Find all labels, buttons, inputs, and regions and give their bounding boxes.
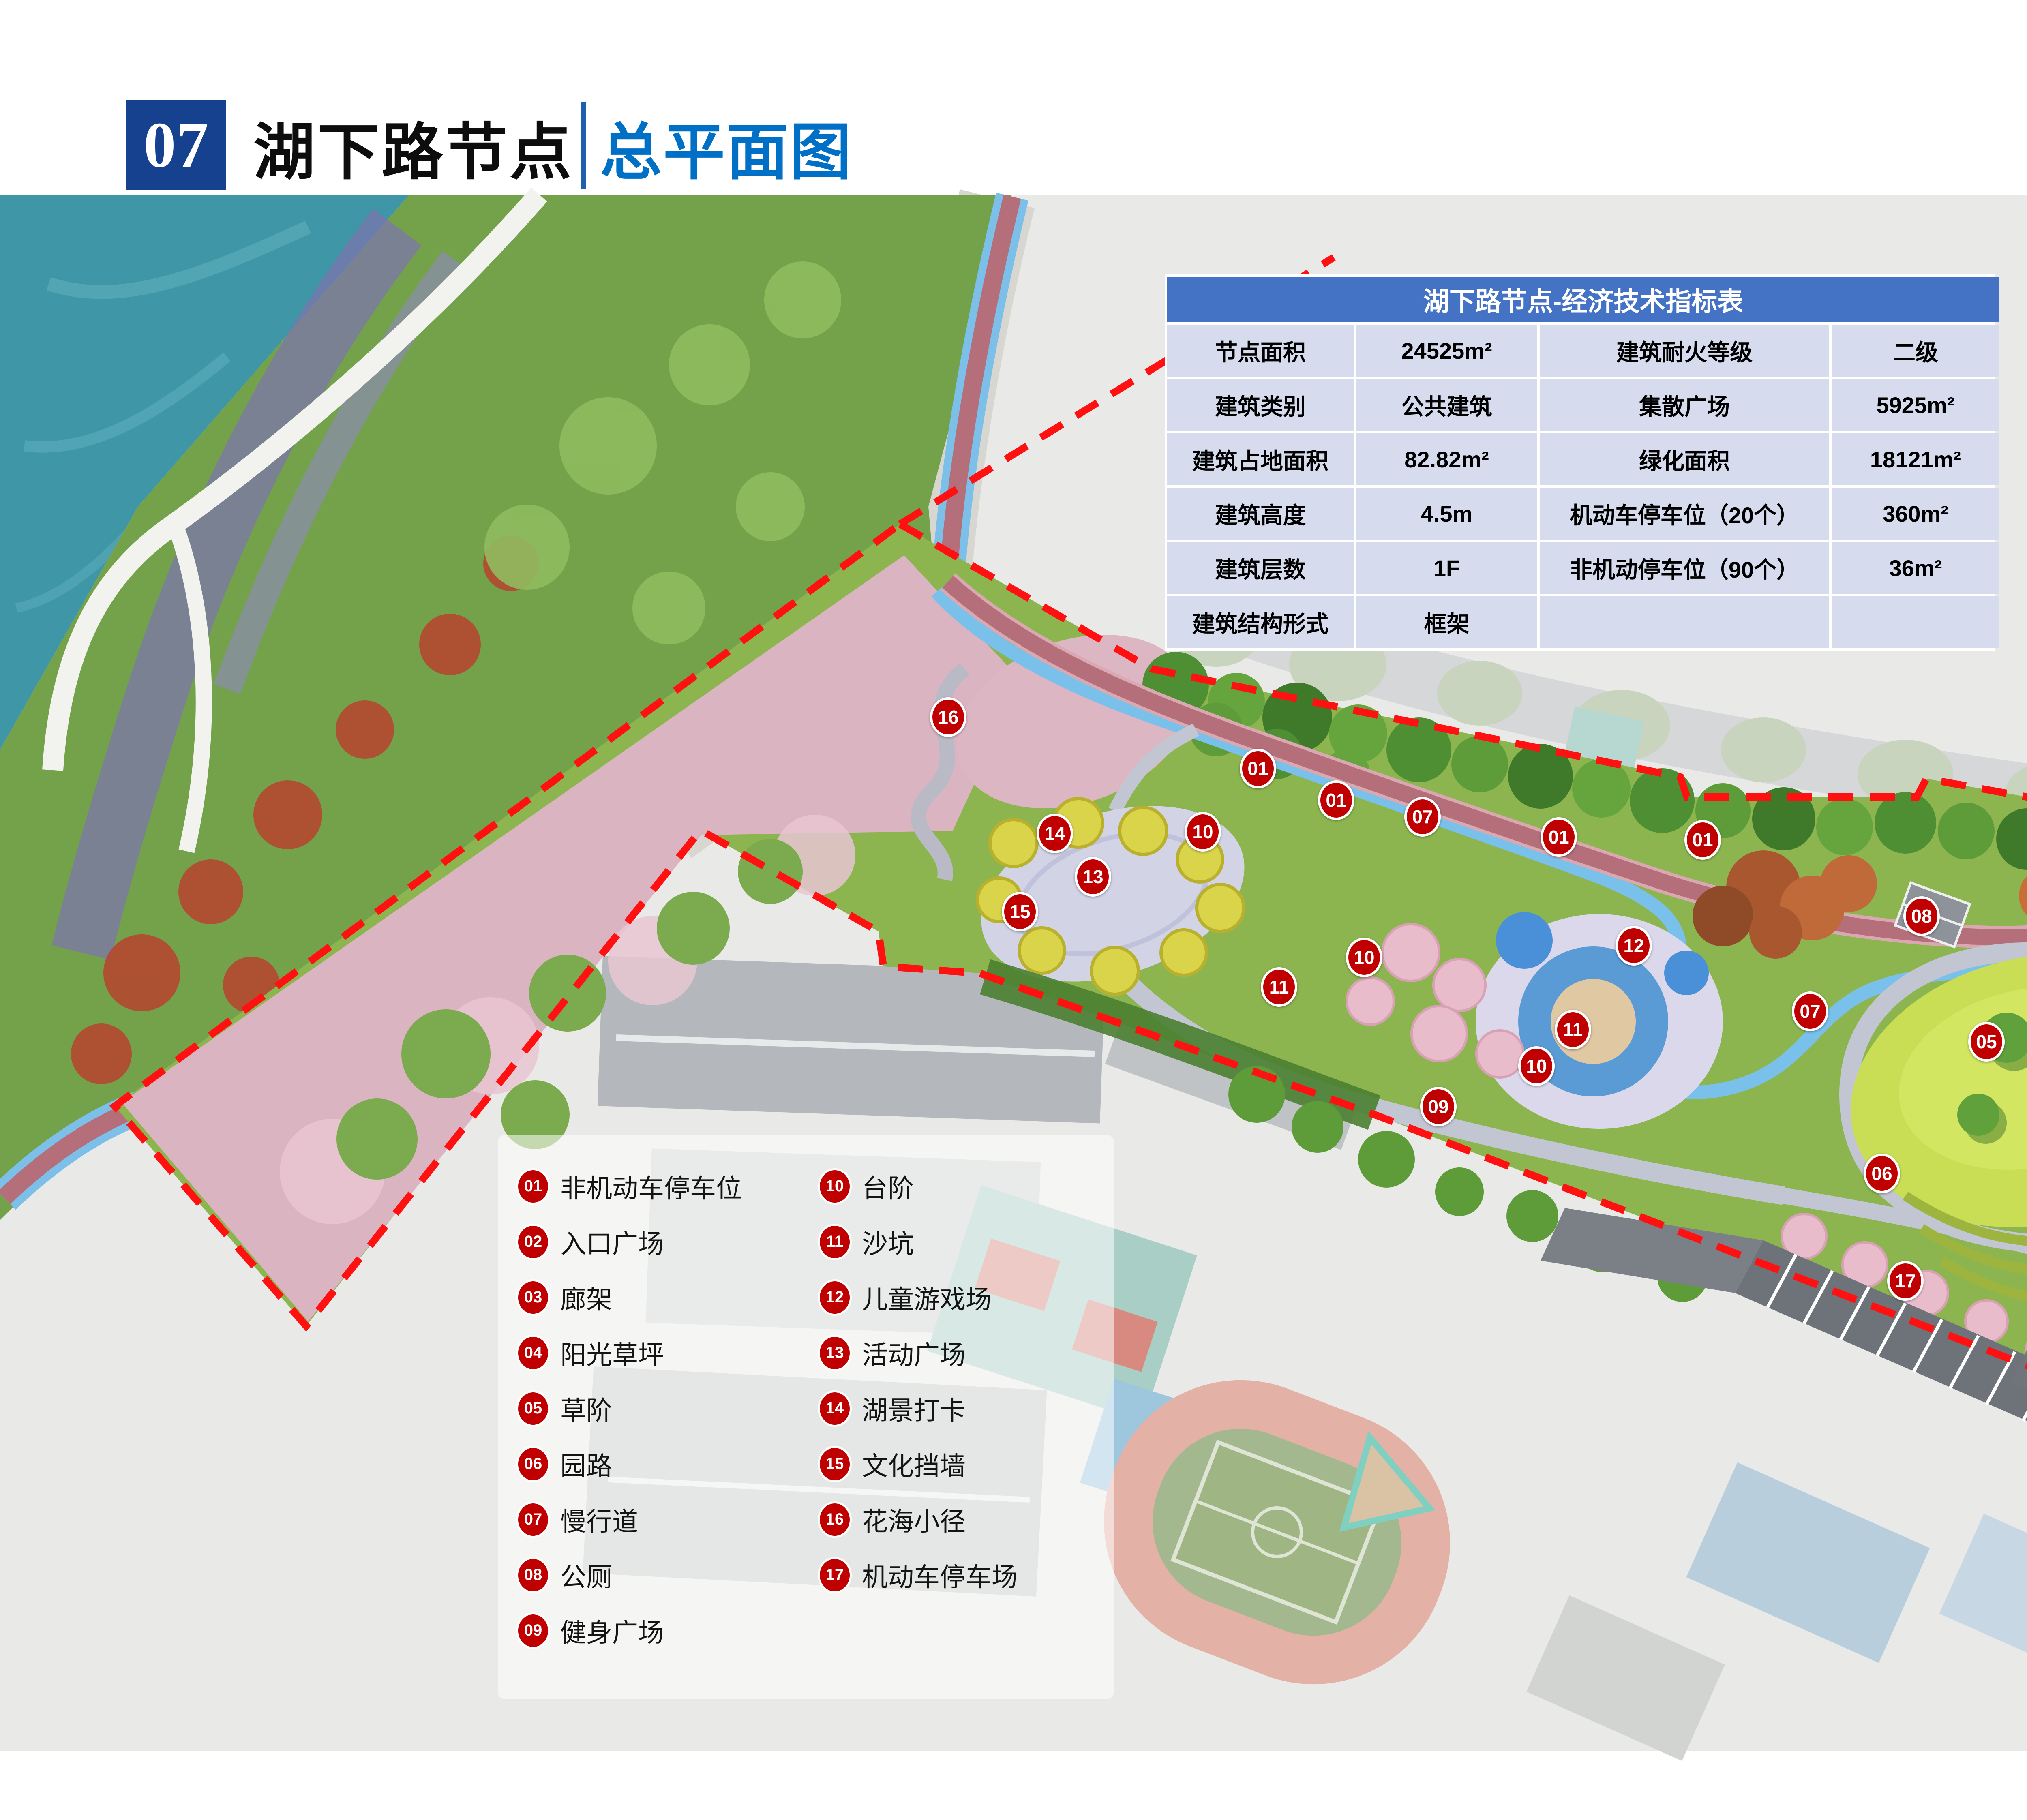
table-cell-r1c3: 建筑耐火等级 bbox=[1540, 325, 1829, 377]
map-marker-09: 09 bbox=[1420, 1087, 1457, 1126]
legend-item-01: 01非机动车停车位 bbox=[518, 1158, 742, 1214]
map-marker-07: 07 bbox=[1404, 797, 1441, 837]
map-marker-10: 10 bbox=[1518, 1046, 1555, 1086]
legend-item-02: 02入口广场 bbox=[518, 1214, 742, 1270]
legend-item-05: 05草阶 bbox=[518, 1381, 742, 1436]
legend-item-03: 03廊架 bbox=[518, 1270, 742, 1325]
map-marker-01: 01 bbox=[1240, 749, 1276, 788]
legend-badge-14: 14 bbox=[820, 1392, 850, 1425]
table-cell-r5c4: 36m² bbox=[1832, 542, 1999, 594]
section-number-box: 07 bbox=[126, 100, 226, 190]
legend-label-06: 园路 bbox=[560, 1445, 612, 1483]
table-cell-r4c4: 360m² bbox=[1832, 488, 1999, 540]
legend-item-06: 06园路 bbox=[518, 1436, 742, 1492]
table-cell-r1c1: 节点面积 bbox=[1167, 325, 1354, 377]
map-marker-10: 10 bbox=[1346, 938, 1382, 977]
table-cell-r4c1: 建筑高度 bbox=[1167, 488, 1354, 540]
table-cell-r2c2: 公共建筑 bbox=[1356, 379, 1537, 431]
legend-label-03: 廊架 bbox=[560, 1279, 612, 1316]
legend-badge-08: 08 bbox=[518, 1559, 548, 1591]
legend-label-10: 台阶 bbox=[862, 1168, 914, 1205]
legend-label-16: 花海小径 bbox=[862, 1501, 966, 1538]
legend-item-10: 10台阶 bbox=[820, 1158, 1018, 1214]
map-marker-14: 14 bbox=[1037, 814, 1073, 853]
legend-label-12: 儿童游戏场 bbox=[862, 1279, 992, 1316]
legend-item-16: 16花海小径 bbox=[820, 1492, 1018, 1547]
legend-badge-17: 17 bbox=[820, 1559, 850, 1591]
map-marker-08: 08 bbox=[1903, 896, 1940, 936]
table-cell-r1c2: 24525m² bbox=[1356, 325, 1537, 377]
table-cell-r5c1: 建筑层数 bbox=[1167, 542, 1354, 594]
map-marker-06: 06 bbox=[1864, 1154, 1900, 1193]
legend-item-08: 08公厕 bbox=[518, 1547, 742, 1603]
legend-column-2: 10台阶11沙坑12儿童游戏场13活动广场14湖景打卡15文化挡墙16花海小径1… bbox=[820, 1158, 1018, 1603]
table-cell-r1c4: 二级 bbox=[1832, 325, 1999, 377]
map-marker-05: 05 bbox=[1968, 1022, 2005, 1062]
map-marker-16: 16 bbox=[930, 697, 966, 737]
table-title: 湖下路节点-经济技术指标表 bbox=[1167, 277, 1999, 322]
legend-column-1: 01非机动车停车位02入口广场03廊架04阳光草坪05草阶06园路07慢行道08… bbox=[518, 1158, 742, 1658]
table-cell-r2c1: 建筑类别 bbox=[1167, 379, 1354, 431]
legend-badge-16: 16 bbox=[820, 1503, 850, 1536]
page-title: 湖下路节点 bbox=[253, 106, 574, 187]
map-marker-01: 01 bbox=[1684, 820, 1721, 860]
map-marker-17: 17 bbox=[1887, 1261, 1924, 1301]
legend-label-17: 机动车停车场 bbox=[862, 1557, 1018, 1594]
legend-label-02: 入口广场 bbox=[560, 1223, 664, 1261]
legend-item-15: 15文化挡墙 bbox=[820, 1436, 1018, 1492]
legend-label-11: 沙坑 bbox=[862, 1223, 914, 1261]
legend-badge-03: 03 bbox=[518, 1281, 548, 1314]
legend-badge-12: 12 bbox=[820, 1281, 850, 1314]
economic-indicators-table: 湖下路节点-经济技术指标表 节点面积24525m²建筑耐火等级二级建筑类别公共建… bbox=[1165, 274, 1995, 651]
legend-label-05: 草阶 bbox=[560, 1390, 612, 1427]
legend-label-08: 公厕 bbox=[560, 1557, 612, 1594]
table-cell-r6c2: 框架 bbox=[1356, 596, 1537, 648]
legend-label-09: 健身广场 bbox=[560, 1612, 664, 1649]
table-cell-r4c3: 机动车停车位（20个） bbox=[1540, 488, 1829, 540]
legend-badge-09: 09 bbox=[518, 1614, 548, 1647]
table-cell-r2c4: 5925m² bbox=[1832, 379, 1999, 431]
legend-label-04: 阳光草坪 bbox=[560, 1334, 664, 1372]
legend-badge-15: 15 bbox=[820, 1448, 850, 1480]
legend-item-09: 09健身广场 bbox=[518, 1603, 742, 1658]
table-cell-r6c3 bbox=[1540, 596, 1829, 648]
table-cell-r5c3: 非机动停车位（90个） bbox=[1540, 542, 1829, 594]
map-marker-15: 15 bbox=[1002, 892, 1038, 931]
legend-badge-04: 04 bbox=[518, 1337, 548, 1369]
legend-badge-06: 06 bbox=[518, 1448, 548, 1480]
legend-badge-05: 05 bbox=[518, 1392, 548, 1425]
legend-badge-10: 10 bbox=[820, 1170, 850, 1203]
map-marker-11: 11 bbox=[1555, 1010, 1591, 1049]
table-cell-r3c2: 82.82m² bbox=[1356, 433, 1537, 485]
table-cell-r3c1: 建筑占地面积 bbox=[1167, 433, 1354, 485]
map-marker-12: 12 bbox=[1616, 926, 1652, 966]
legend-item-14: 14湖景打卡 bbox=[820, 1381, 1018, 1436]
map-marker-01: 01 bbox=[1318, 780, 1354, 820]
legend-badge-11: 11 bbox=[820, 1226, 850, 1258]
legend-item-13: 13活动广场 bbox=[820, 1325, 1018, 1381]
legend-label-01: 非机动车停车位 bbox=[560, 1168, 742, 1205]
legend-badge-07: 07 bbox=[518, 1503, 548, 1536]
legend-label-13: 活动广场 bbox=[862, 1334, 966, 1372]
legend-badge-02: 02 bbox=[518, 1226, 548, 1258]
map-marker-07: 07 bbox=[1792, 991, 1828, 1031]
page-subtitle: 总平面图 bbox=[600, 106, 853, 187]
map-marker-01: 01 bbox=[1541, 817, 1577, 857]
slide-page: 07 湖下路节点 总平面图 湖下路节点-经济技术指标表 节点面积24525m²建… bbox=[0, 0, 2027, 1820]
table-cell-r4c2: 4.5m bbox=[1356, 488, 1537, 540]
legend-label-07: 慢行道 bbox=[560, 1501, 638, 1538]
table-cell-r3c3: 绿化面积 bbox=[1540, 433, 1829, 485]
map-marker-13: 13 bbox=[1075, 857, 1111, 897]
legend-item-17: 17机动车停车场 bbox=[820, 1547, 1018, 1603]
table-cell-r2c3: 集散广场 bbox=[1540, 379, 1829, 431]
legend-badge-13: 13 bbox=[820, 1337, 850, 1369]
table-cell-r5c2: 1F bbox=[1356, 542, 1537, 594]
legend-label-15: 文化挡墙 bbox=[862, 1445, 966, 1483]
table-cell-r6c1: 建筑结构形式 bbox=[1167, 596, 1354, 648]
title-divider bbox=[581, 102, 586, 189]
legend-label-14: 湖景打卡 bbox=[862, 1390, 966, 1427]
table-cell-r3c4: 18121m² bbox=[1832, 433, 1999, 485]
map-marker-11: 11 bbox=[1261, 967, 1297, 1007]
legend-badge-01: 01 bbox=[518, 1170, 548, 1203]
table-cell-r6c4 bbox=[1832, 596, 1999, 648]
legend-item-04: 04阳光草坪 bbox=[518, 1325, 742, 1381]
legend-item-12: 12儿童游戏场 bbox=[820, 1270, 1018, 1325]
map-marker-10: 10 bbox=[1185, 812, 1221, 852]
legend-item-11: 11沙坑 bbox=[820, 1214, 1018, 1270]
legend-item-07: 07慢行道 bbox=[518, 1492, 742, 1547]
